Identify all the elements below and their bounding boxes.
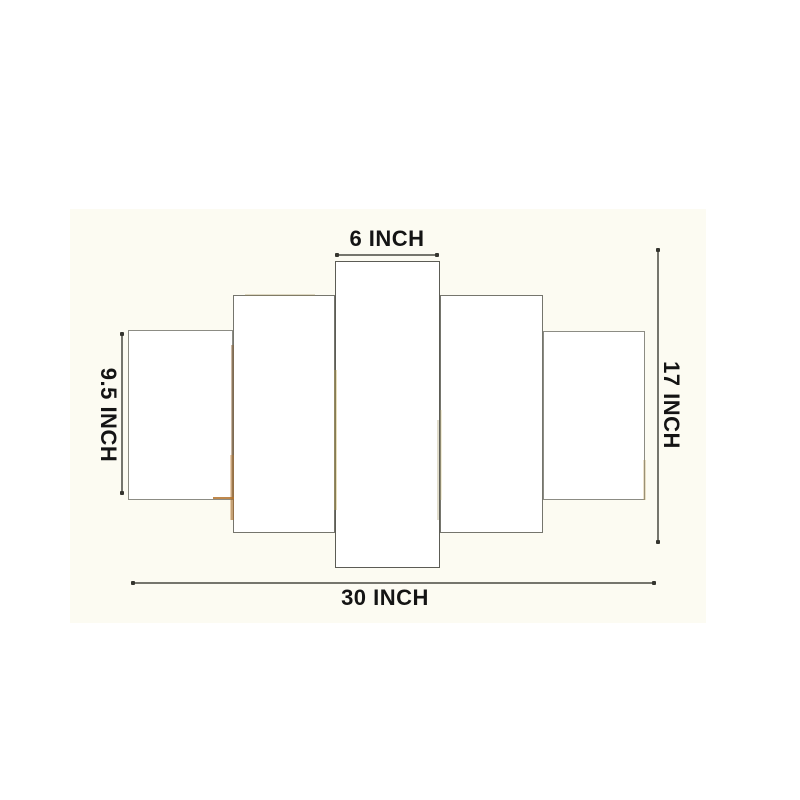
top-dimension-line bbox=[337, 254, 437, 256]
art-panel-4-right bbox=[440, 295, 543, 533]
bottom-dimension-label: 30 INCH bbox=[325, 586, 445, 610]
image-canvas: 6 INCH 9.5 INCH 17 INCH 30 INCH bbox=[0, 0, 800, 800]
art-panel-2-left bbox=[233, 295, 335, 533]
bottom-dimension-line bbox=[133, 582, 654, 584]
art-panel-1-far-left bbox=[128, 330, 233, 500]
top-dimension-label: 6 INCH bbox=[337, 227, 437, 251]
left-dimension-label: 9.5 INCH bbox=[96, 350, 120, 480]
product-photo-area bbox=[70, 209, 706, 623]
art-panel-5-far-right bbox=[543, 331, 645, 500]
art-panel-3-center bbox=[335, 261, 440, 568]
right-dimension-label: 17 INCH bbox=[659, 346, 683, 464]
left-dimension-line bbox=[121, 334, 123, 493]
